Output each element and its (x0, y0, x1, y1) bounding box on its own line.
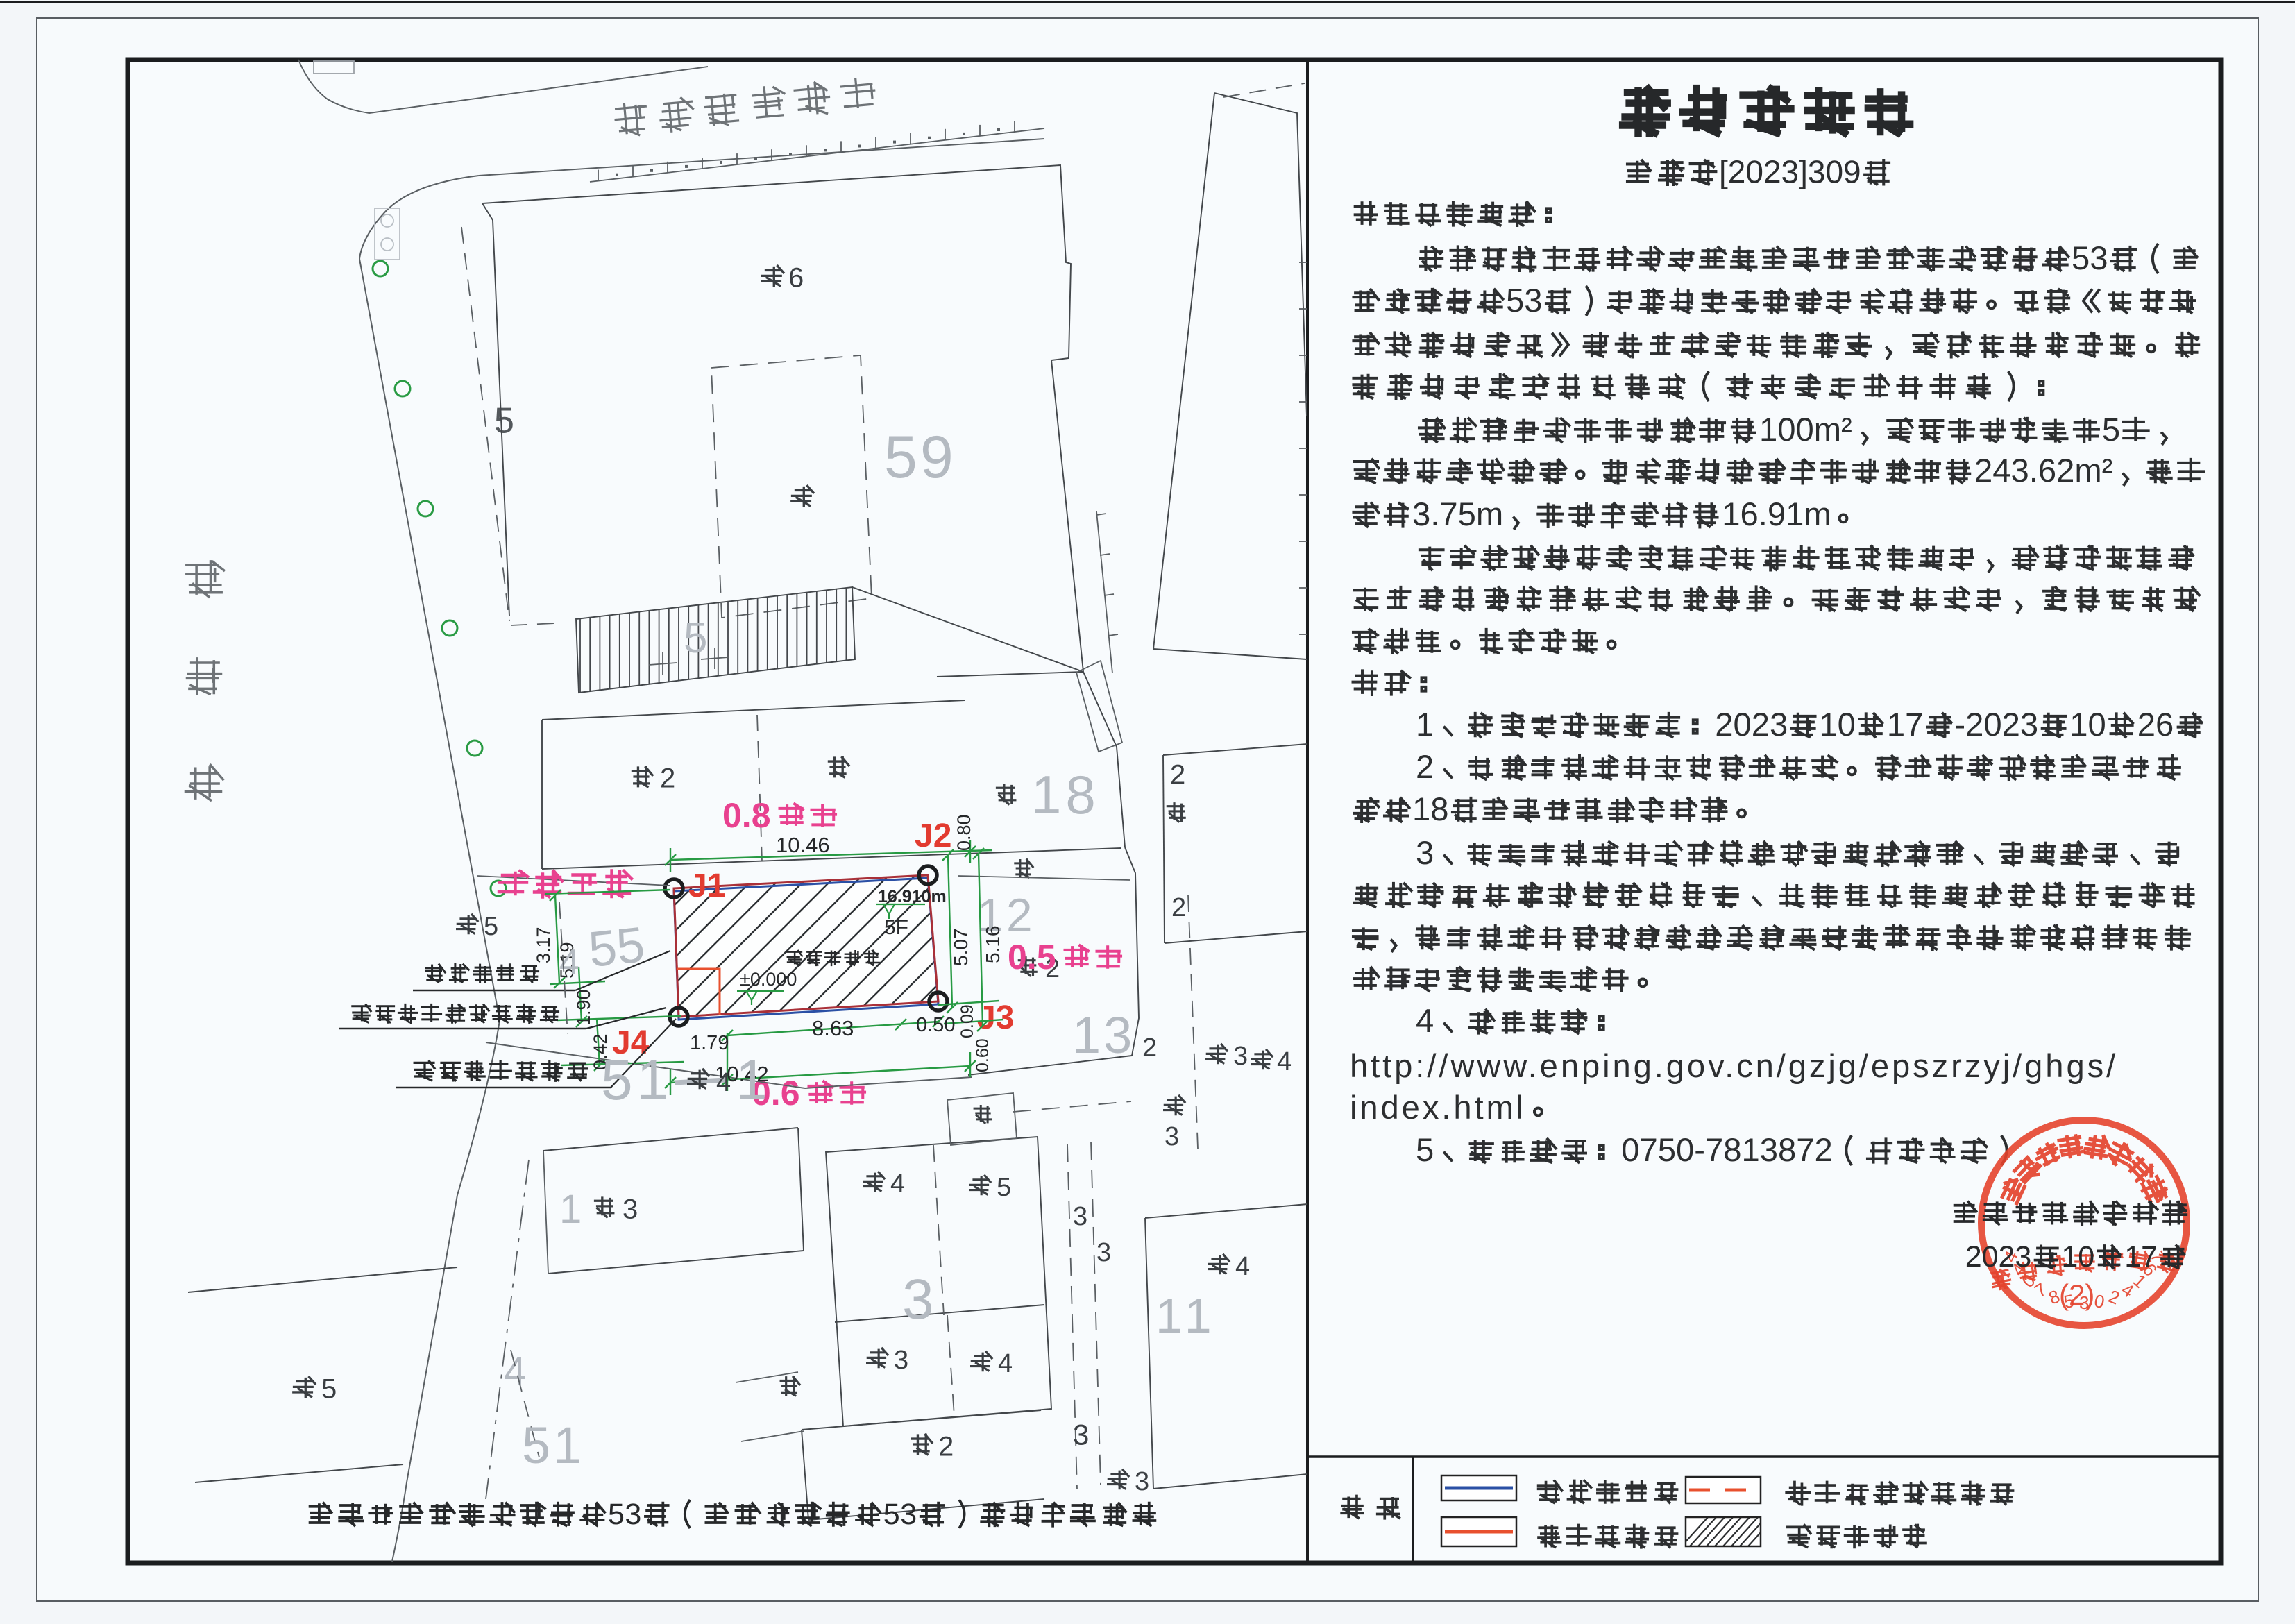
svg-text:0.09: 0.09 (958, 1004, 977, 1038)
svg-text:100m²: 100m² (1759, 412, 1852, 448)
svg-text:5.16: 5.16 (982, 926, 1003, 964)
svg-text:3: 3 (1073, 1418, 1089, 1450)
svg-text:4: 4 (1235, 1252, 1250, 1281)
svg-text:index.html: index.html (1350, 1090, 1526, 1126)
svg-text:59: 59 (884, 424, 956, 491)
svg-text:0.60: 0.60 (973, 1038, 992, 1072)
svg-text:3: 3 (2079, 1292, 2089, 1313)
svg-text:2: 2 (660, 763, 675, 794)
svg-text:53: 53 (1506, 282, 1543, 319)
svg-text:5: 5 (1416, 1132, 1434, 1169)
svg-text:10: 10 (2061, 1240, 2094, 1274)
svg-text:18: 18 (1031, 764, 1100, 825)
svg-text:6: 6 (788, 263, 804, 294)
svg-text:53: 53 (608, 1498, 642, 1531)
svg-text:18: 18 (1412, 791, 1449, 828)
svg-text:5: 5 (2102, 412, 2120, 448)
svg-text:2: 2 (938, 1432, 954, 1462)
svg-text:0.8: 0.8 (722, 796, 771, 835)
svg-text:J1: J1 (688, 868, 725, 904)
svg-text:3: 3 (1135, 1467, 1149, 1496)
svg-text:0.5: 0.5 (1008, 938, 1056, 976)
svg-text:5: 5 (484, 912, 498, 941)
svg-text:2: 2 (1142, 1033, 1157, 1063)
svg-text:3.75m: 3.75m (1412, 496, 1503, 533)
svg-text:8.63: 8.63 (812, 1016, 854, 1040)
svg-text:3: 3 (1165, 1122, 1179, 1151)
svg-text:5: 5 (494, 401, 514, 441)
svg-text:2023: 2023 (1715, 707, 1788, 743)
svg-text:3: 3 (623, 1194, 638, 1225)
svg-text:51: 51 (522, 1416, 584, 1474)
svg-text:53: 53 (2072, 240, 2108, 277)
svg-text:4: 4 (504, 1349, 526, 1394)
svg-text:3.17: 3.17 (533, 927, 554, 963)
svg-text:53: 53 (883, 1498, 917, 1531)
svg-text:5: 5 (997, 1173, 1011, 1202)
svg-text:http://www.enping.gov.cn/gzjg/: http://www.enping.gov.cn/gzjg/epszrzyj/g… (1350, 1048, 2118, 1085)
svg-text:0750-7813872: 0750-7813872 (1621, 1132, 1832, 1169)
svg-text:17: 17 (2124, 1240, 2158, 1274)
svg-text:4: 4 (890, 1169, 905, 1199)
svg-text:3: 3 (894, 1346, 908, 1375)
svg-text:10: 10 (1819, 707, 1856, 743)
svg-text:1: 1 (559, 1187, 582, 1232)
svg-text:3: 3 (1416, 835, 1434, 872)
svg-text:10.46: 10.46 (776, 833, 830, 857)
svg-text:10: 10 (2069, 707, 2106, 743)
svg-text:2: 2 (1171, 893, 1186, 922)
svg-text:0.80: 0.80 (954, 814, 974, 851)
svg-text:55: 55 (586, 917, 647, 978)
svg-text:2: 2 (1416, 749, 1434, 786)
svg-text:51: 51 (601, 1049, 672, 1112)
svg-text:11: 11 (1155, 1289, 1217, 1343)
svg-text:4: 4 (1277, 1047, 1292, 1076)
svg-text:3: 3 (1233, 1042, 1248, 1071)
svg-text:1: 1 (736, 1049, 768, 1112)
svg-text:16.91m: 16.91m (1722, 496, 1831, 533)
svg-text:4: 4 (1416, 1003, 1434, 1040)
svg-text:4: 4 (559, 942, 579, 983)
svg-text:-2023: -2023 (1954, 707, 2038, 743)
svg-text:2: 2 (1170, 760, 1185, 790)
svg-text:16.910m: 16.910m (878, 887, 947, 906)
svg-text:4: 4 (716, 1068, 731, 1097)
svg-text:1: 1 (1416, 707, 1434, 743)
svg-text:5F: 5F (884, 916, 908, 939)
svg-text:3: 3 (1073, 1202, 1087, 1231)
svg-text:4: 4 (998, 1349, 1013, 1378)
svg-text:5.07: 5.07 (950, 929, 972, 967)
svg-text:5: 5 (684, 614, 707, 662)
svg-text:5: 5 (321, 1374, 337, 1405)
svg-text:13: 13 (1072, 1006, 1135, 1064)
svg-text:J2: J2 (915, 818, 951, 854)
svg-text:[2023]309: [2023]309 (1719, 154, 1861, 190)
svg-text:3: 3 (902, 1268, 934, 1331)
svg-text:1.79: 1.79 (690, 1032, 729, 1054)
svg-text:1.90: 1.90 (573, 989, 594, 1026)
svg-text:0.50: 0.50 (916, 1014, 955, 1036)
svg-text:26: 26 (2137, 707, 2174, 743)
svg-text:±0.000: ±0.000 (740, 969, 797, 990)
svg-text:243.62m²: 243.62m² (1974, 452, 2112, 489)
svg-text:2023: 2023 (1965, 1240, 2032, 1274)
svg-text:3: 3 (1096, 1238, 1111, 1267)
svg-text:17: 17 (1887, 707, 1924, 743)
